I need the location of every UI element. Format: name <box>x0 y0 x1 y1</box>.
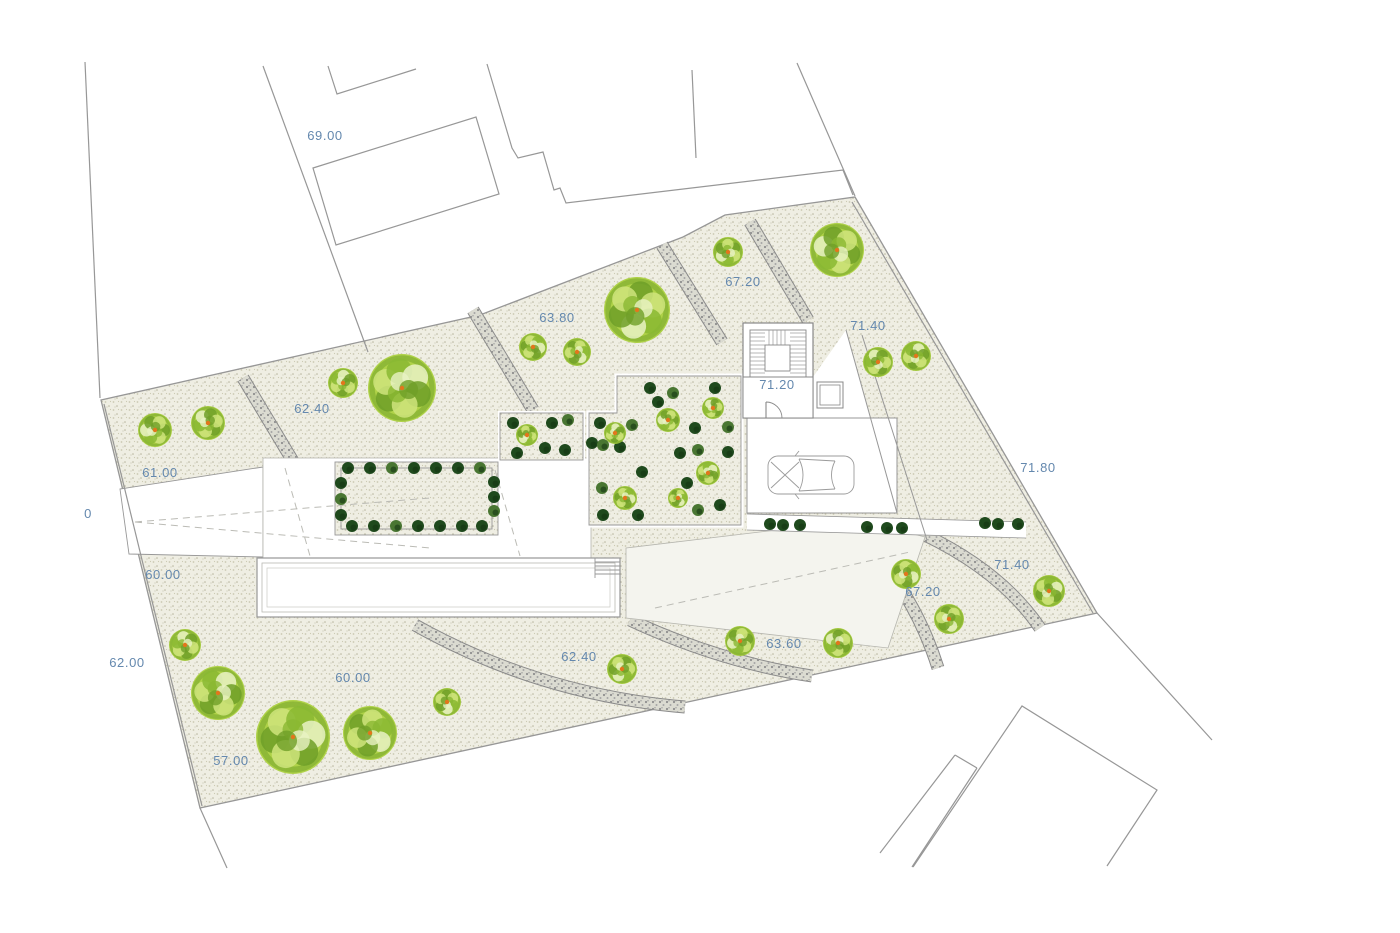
tree <box>433 688 461 716</box>
bush <box>714 499 726 511</box>
bush <box>896 522 908 534</box>
elevation-label: 62.40 <box>294 401 330 416</box>
surface <box>257 558 620 617</box>
elevation-label: 60.00 <box>145 567 181 582</box>
boundary-line <box>955 755 977 768</box>
tree <box>516 424 538 446</box>
bush <box>594 417 606 429</box>
bush <box>652 396 664 408</box>
elevation-label: 71.80 <box>1020 460 1056 475</box>
elevation-label: 67.20 <box>725 274 761 289</box>
bush <box>364 462 376 474</box>
tree <box>934 604 964 634</box>
bush <box>430 462 442 474</box>
bush <box>390 520 402 532</box>
bush <box>881 522 893 534</box>
bush <box>335 493 347 505</box>
boundary-line <box>200 808 227 868</box>
bush <box>488 476 500 488</box>
tree <box>1033 575 1065 607</box>
tree <box>519 333 547 361</box>
boundary-line <box>880 755 955 853</box>
bush <box>764 518 776 530</box>
boundary-line <box>1097 613 1212 740</box>
tree <box>563 338 591 366</box>
bush <box>476 520 488 532</box>
bush <box>692 504 704 516</box>
tree <box>668 488 688 508</box>
tree <box>604 277 670 343</box>
bush <box>412 520 424 532</box>
tree <box>696 461 720 485</box>
boundary-line <box>913 706 1157 867</box>
bush <box>586 437 598 449</box>
elevation-label: 57.00 <box>213 753 249 768</box>
tree <box>725 626 755 656</box>
bush <box>644 382 656 394</box>
bush <box>507 417 519 429</box>
bush <box>992 518 1004 530</box>
boundary-line <box>85 62 100 398</box>
bush <box>597 509 609 521</box>
bush <box>722 446 734 458</box>
site-plan-page: 69.0063.8062.4061.00060.0062.0057.0060.0… <box>0 0 1400 933</box>
bush <box>342 462 354 474</box>
boundary-line <box>797 63 855 196</box>
bush <box>386 462 398 474</box>
bush <box>511 447 523 459</box>
tree <box>863 347 893 377</box>
bush <box>368 520 380 532</box>
bush <box>674 447 686 459</box>
bush <box>1012 518 1024 530</box>
elevation-label: 0 <box>84 506 92 521</box>
boundary-line <box>692 70 696 158</box>
elevation-label: 63.60 <box>766 636 802 651</box>
bush <box>794 519 806 531</box>
tree <box>191 666 245 720</box>
boundary-line <box>487 64 853 203</box>
tree <box>138 413 172 447</box>
bush <box>596 482 608 494</box>
bush <box>689 422 701 434</box>
bush <box>667 387 679 399</box>
bush <box>626 419 638 431</box>
tree <box>343 706 397 760</box>
boundary-line <box>263 66 368 352</box>
elevation-label: 71.40 <box>850 318 886 333</box>
tree <box>656 408 680 432</box>
bush <box>562 414 574 426</box>
tree <box>607 654 637 684</box>
elevation-label: 60.00 <box>335 670 371 685</box>
tree <box>823 628 853 658</box>
tree <box>810 223 864 277</box>
tree <box>191 406 225 440</box>
tree <box>328 368 358 398</box>
bush <box>488 491 500 503</box>
elevation-label: 62.00 <box>109 655 145 670</box>
elevation-label: 69.00 <box>307 128 343 143</box>
bush <box>861 521 873 533</box>
tree <box>613 486 637 510</box>
bush <box>408 462 420 474</box>
bush <box>335 477 347 489</box>
boundary-line <box>328 66 416 94</box>
site-plan-canvas: 69.0063.8062.4061.00060.0062.0057.0060.0… <box>0 0 1400 933</box>
elevation-label: 67.20 <box>905 584 941 599</box>
bush <box>434 520 446 532</box>
bush <box>681 477 693 489</box>
stair-part <box>817 382 843 408</box>
tree <box>604 422 626 444</box>
bush <box>335 509 347 521</box>
tree <box>713 237 743 267</box>
elevation-label: 71.40 <box>994 557 1030 572</box>
bush <box>636 466 648 478</box>
bush <box>692 444 704 456</box>
tree <box>702 397 724 419</box>
bush <box>777 519 789 531</box>
bush <box>452 462 464 474</box>
bush <box>597 439 609 451</box>
bush <box>632 509 644 521</box>
bush <box>456 520 468 532</box>
stair-part <box>765 345 790 371</box>
bush <box>979 517 991 529</box>
elevation-label: 71.20 <box>759 377 795 392</box>
bush <box>722 421 734 433</box>
bush <box>559 444 571 456</box>
boundary-line <box>912 768 977 867</box>
bush <box>709 382 721 394</box>
elevation-label: 62.40 <box>561 649 597 664</box>
bush <box>488 505 500 517</box>
bush <box>539 442 551 454</box>
tree <box>368 354 436 422</box>
elevation-label: 61.00 <box>142 465 178 480</box>
bush <box>474 462 486 474</box>
tree <box>169 629 201 661</box>
elevation-label: 63.80 <box>539 310 575 325</box>
bush <box>346 520 358 532</box>
tree <box>901 341 931 371</box>
tree <box>256 700 330 774</box>
bush <box>546 417 558 429</box>
